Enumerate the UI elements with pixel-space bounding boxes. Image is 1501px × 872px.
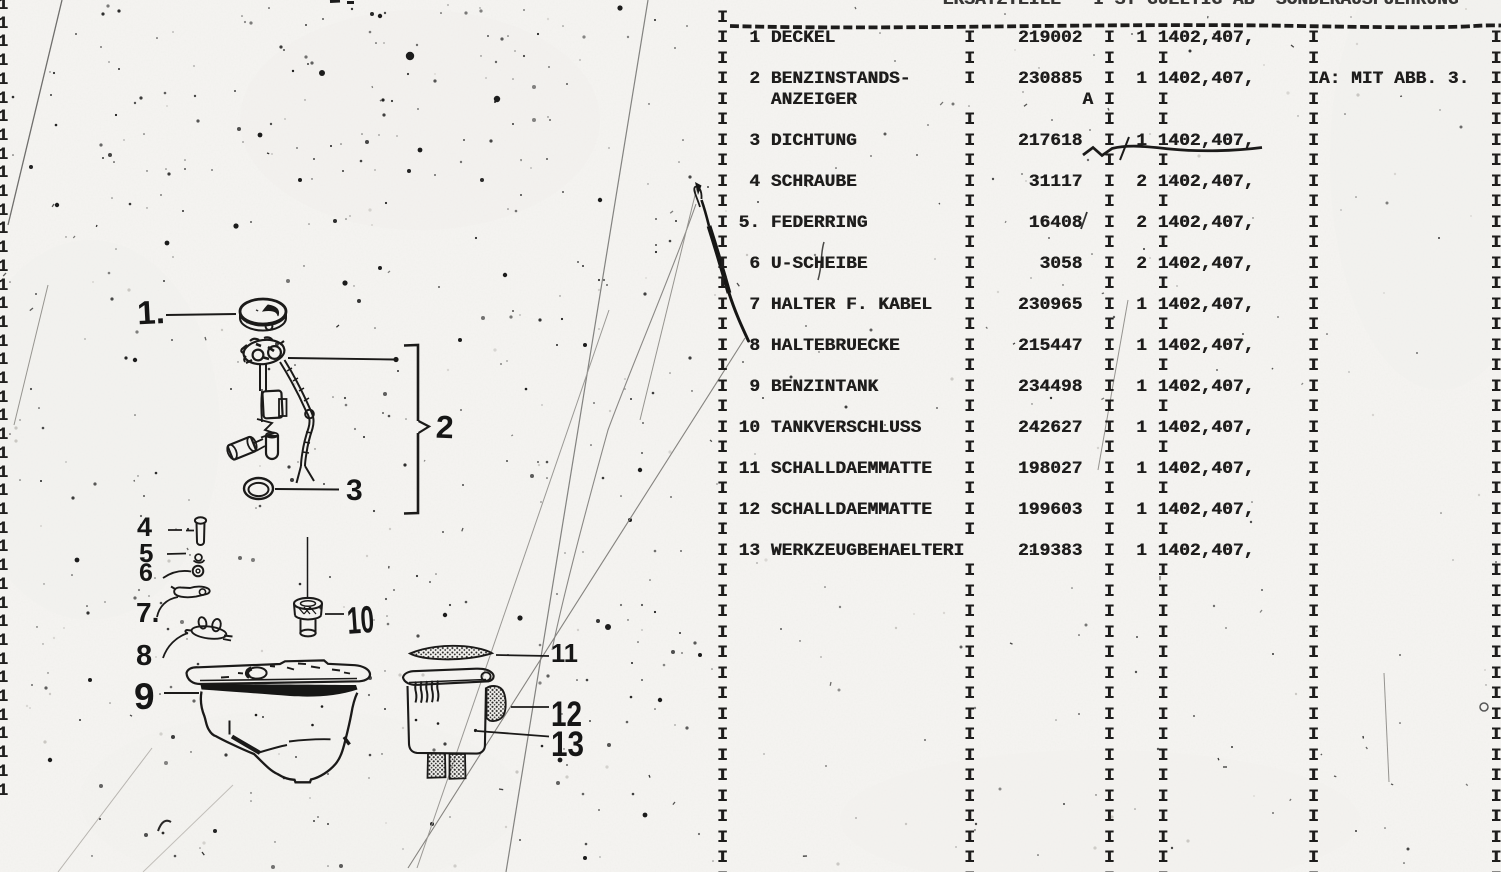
svg-text:8: 8	[136, 640, 152, 672]
svg-text:2: 2	[435, 409, 454, 446]
svg-text:13: 13	[551, 725, 584, 764]
svg-text:10: 10	[346, 599, 376, 643]
svg-text:7.: 7.	[136, 597, 159, 628]
svg-text:6: 6	[139, 559, 153, 587]
svg-text:3: 3	[346, 474, 363, 507]
svg-text:11: 11	[551, 638, 578, 668]
svg-text:1.: 1.	[136, 293, 165, 331]
svg-text:9: 9	[134, 676, 155, 717]
